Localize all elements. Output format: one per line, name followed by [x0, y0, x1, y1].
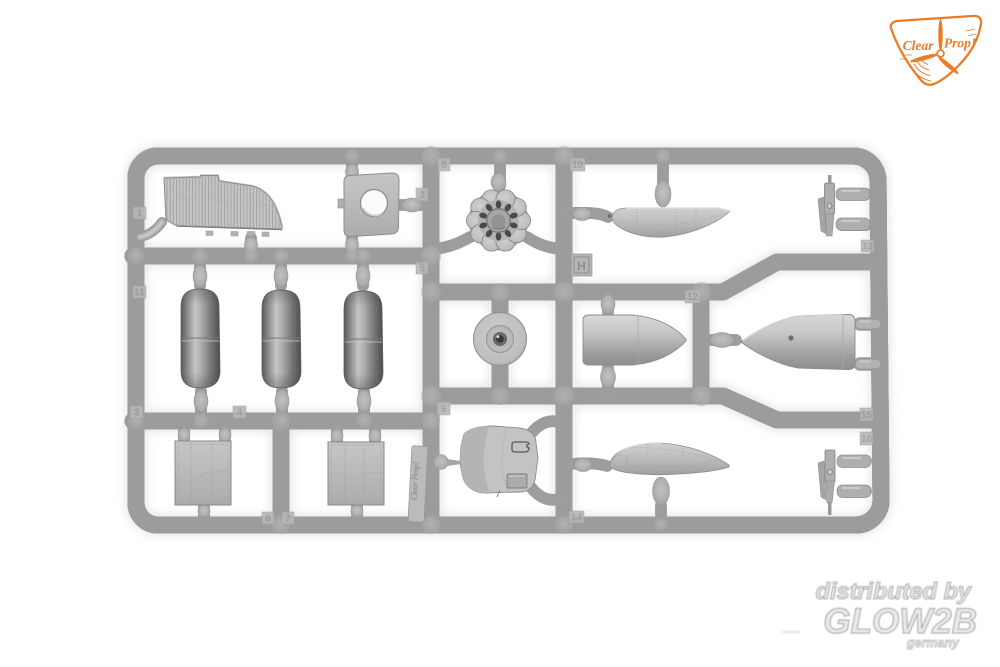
- svg-text:1: 1: [137, 209, 143, 220]
- svg-text:5: 5: [419, 264, 425, 275]
- svg-text:H: H: [577, 259, 586, 273]
- svg-text:2: 2: [419, 190, 425, 201]
- svg-text:8: 8: [441, 160, 447, 171]
- svg-text:16: 16: [861, 434, 873, 445]
- svg-text:4: 4: [237, 408, 243, 419]
- svg-text:10: 10: [572, 160, 584, 171]
- svg-text:6: 6: [265, 514, 271, 525]
- svg-text:15: 15: [861, 410, 873, 421]
- svg-text:11: 11: [134, 288, 145, 299]
- svg-text:14: 14: [571, 513, 583, 524]
- svg-text:germany: germany: [906, 636, 960, 650]
- svg-text:7: 7: [285, 514, 291, 525]
- svg-text:distributed by: distributed by: [816, 578, 973, 604]
- svg-text:Prop!: Prop!: [944, 36, 976, 51]
- svg-text:Clear Prop!: Clear Prop!: [409, 461, 421, 500]
- svg-text:Clear: Clear: [903, 38, 934, 53]
- svg-text:9: 9: [441, 404, 447, 415]
- svg-text:13: 13: [862, 242, 874, 253]
- svg-text:12: 12: [687, 292, 699, 303]
- svg-text:3: 3: [134, 408, 140, 419]
